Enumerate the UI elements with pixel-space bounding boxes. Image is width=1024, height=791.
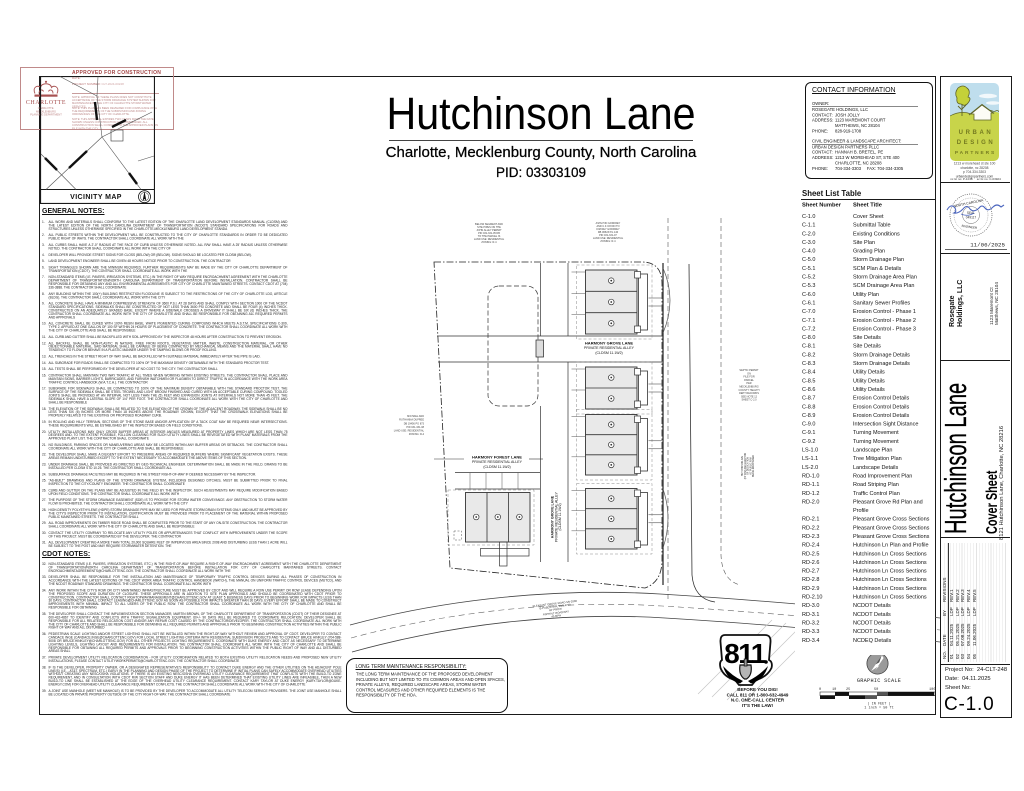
svg-text:PARTNERS: PARTNERS <box>955 150 996 156</box>
svg-text:11/06/2025: 11/06/2025 <box>970 242 1005 249</box>
svg-text:VICINITY MAP: VICINITY MAP <box>70 194 122 201</box>
svg-text:DESIGN: DESIGN <box>957 140 996 146</box>
svg-text:URBAN: URBAN <box>959 130 994 136</box>
svg-text:049117: 049117 <box>966 216 977 220</box>
svg-text:ENGINEER: ENGINEER <box>961 224 978 230</box>
